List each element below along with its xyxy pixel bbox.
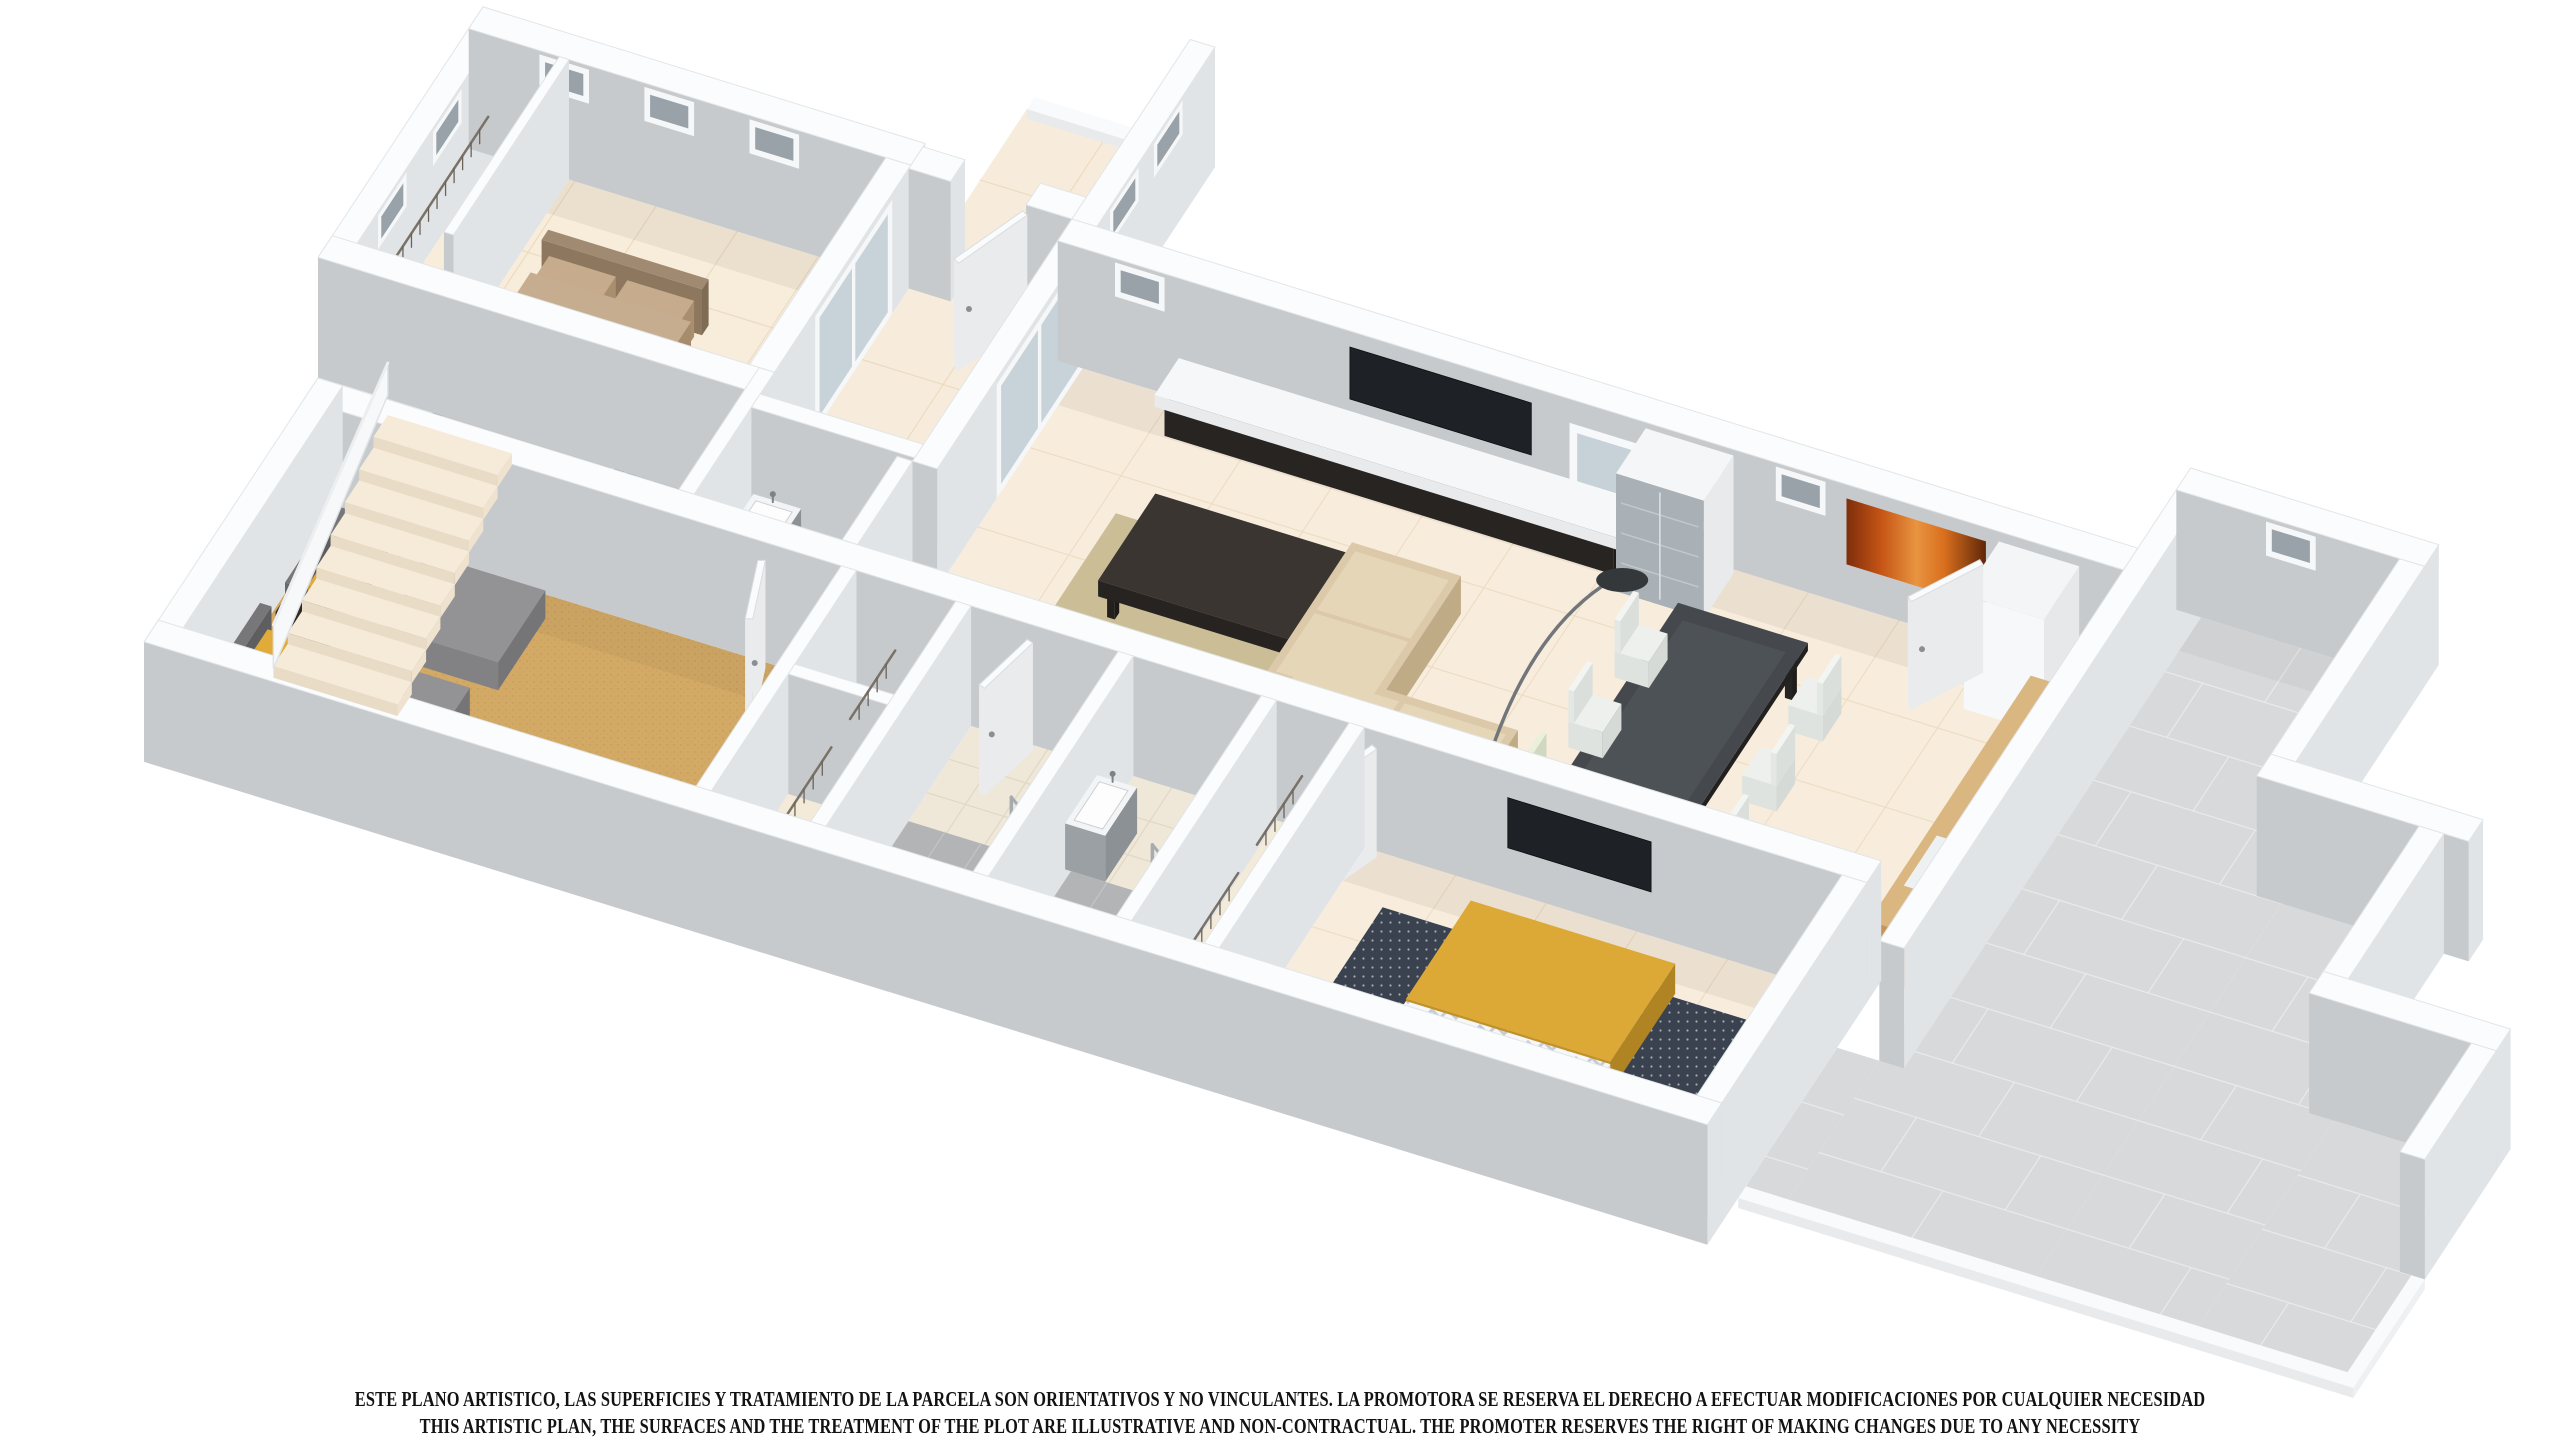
floorplan-page: ESTE PLANO ARTISTICO, LAS SUPERFICIES Y … (0, 0, 2560, 1440)
scene-root (144, 7, 2511, 1398)
disclaimer-line-en: THIS ARTISTIC PLAN, THE SURFACES AND THE… (344, 1413, 2216, 1439)
floorplan-3d-render (0, 0, 2560, 1440)
disclaimer-line-es: ESTE PLANO ARTISTICO, LAS SUPERFICIES Y … (344, 1386, 2216, 1412)
